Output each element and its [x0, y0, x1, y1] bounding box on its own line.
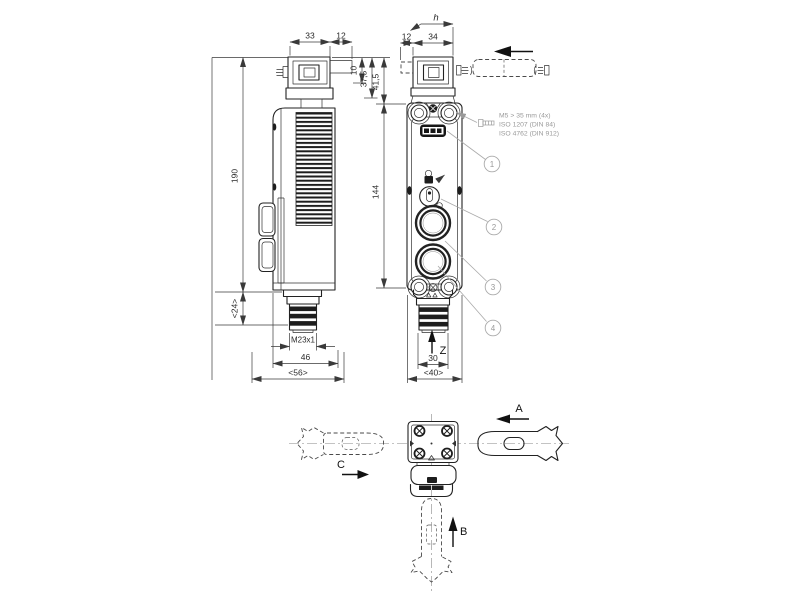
insertion-arrow-icon: [494, 46, 533, 57]
a-label: A: [515, 403, 523, 415]
dim-30: 30: [428, 353, 438, 363]
arrow-c-icon: [358, 470, 370, 479]
front-side-screw-left: [407, 186, 411, 195]
mounting-note-line3: ISO 4762 (DIN 912): [499, 131, 559, 138]
actuator-dashed: [473, 60, 536, 77]
mounting-note-line2: ISO 1207 (DIN 84): [499, 122, 555, 129]
side-head: [288, 57, 330, 88]
center-screw-top: [429, 104, 437, 112]
technical-drawing: Z: [0, 0, 800, 600]
screw-icon: [276, 67, 288, 78]
screw-icon: [534, 66, 549, 76]
callout-3: 3: [485, 279, 501, 295]
side-screw-mid: [273, 183, 277, 190]
dim-37-5: 37,5: [359, 70, 369, 87]
callout-1: 1: [484, 156, 500, 172]
callout-1-label: 1: [490, 160, 495, 169]
dim-34: 34: [428, 32, 438, 42]
callout-4: 4: [485, 320, 501, 336]
dim-56: <56>: [288, 368, 307, 378]
side-view: [259, 57, 352, 333]
callout-2-label: 2: [492, 223, 497, 232]
brand-logo: [420, 125, 446, 138]
dim-12-front: 12: [402, 32, 412, 42]
side-heatsink-ribs: [296, 113, 332, 226]
actuator-tip-dashed: [401, 62, 413, 73]
dim-24: <24>: [230, 299, 240, 318]
direction-a: A: [496, 403, 529, 424]
front-head: [413, 57, 453, 88]
key-cylinder: [420, 187, 440, 207]
direction-b: B: [449, 517, 468, 548]
callout-2: 2: [486, 219, 502, 235]
front-head-bracket: [411, 88, 455, 96]
dim-h: h: [433, 13, 438, 24]
dim-40: <40>: [424, 368, 443, 378]
bell-detail: [427, 477, 437, 483]
dim-10: 10: [349, 66, 359, 76]
screw-icon: [457, 66, 472, 76]
arrow-a-icon: [496, 415, 510, 424]
dim-12-side: 12: [336, 31, 346, 41]
c-label: C: [337, 459, 345, 471]
dimensional-drawing-page: Z: [0, 0, 800, 600]
side-head-step: [301, 99, 322, 108]
callout-3-label: 3: [491, 283, 496, 292]
side-head-bracket: [286, 88, 333, 99]
z-label: Z: [440, 345, 447, 357]
side-connector: [284, 290, 322, 333]
b-label: B: [460, 526, 467, 538]
center-point: [431, 443, 433, 445]
dim-190: 190: [230, 169, 240, 183]
front-side-screw-right: [457, 186, 461, 195]
dim-33: 33: [305, 31, 315, 41]
direction-c: C: [337, 459, 369, 479]
dim-46: 46: [301, 352, 311, 362]
mounting-screw-icon: [479, 120, 495, 127]
dim-m23x1: M23x1: [291, 336, 316, 345]
callout-4-label: 4: [491, 324, 496, 333]
dim-144: 144: [371, 185, 381, 199]
mounting-note-line1: M5 > 35 mm (4x): [499, 113, 551, 120]
arrow-b-icon: [449, 517, 458, 532]
top-view: A B C: [289, 403, 572, 594]
front-view: Z: [401, 46, 549, 357]
side-screw-top: [273, 123, 277, 130]
dim-41-5: 41,5: [371, 73, 381, 90]
